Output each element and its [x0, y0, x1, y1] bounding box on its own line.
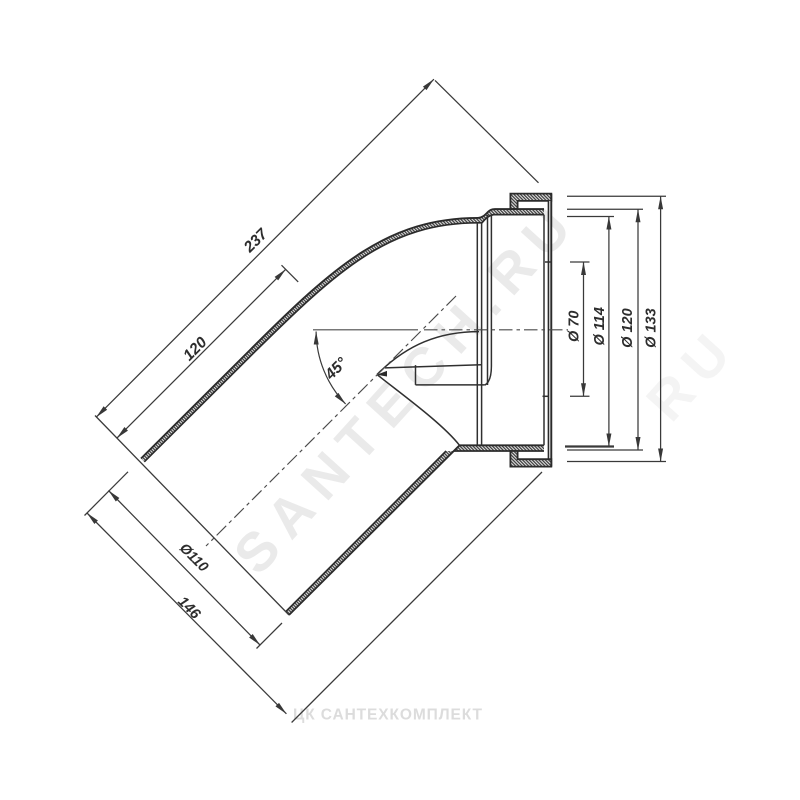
svg-text:Ø 114: Ø 114: [592, 307, 608, 345]
svg-text:Ø 70: Ø 70: [566, 311, 582, 342]
svg-text:Ø 133: Ø 133: [644, 308, 660, 348]
svg-text:ЦК САНТЕХКОМПЛЕКТ: ЦК САНТЕХКОМПЛЕКТ: [293, 707, 483, 724]
svg-text:Ø 120: Ø 120: [620, 308, 636, 348]
